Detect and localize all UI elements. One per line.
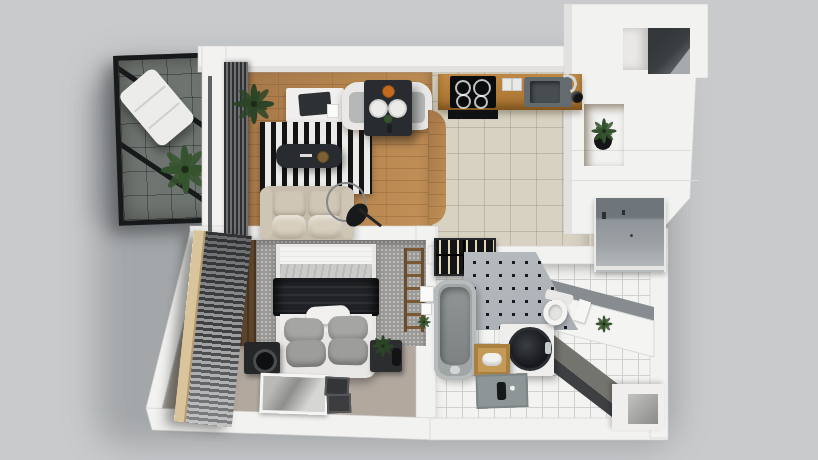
outlet <box>512 78 522 91</box>
bed-pillow <box>286 339 327 367</box>
wooden-stool <box>474 344 510 376</box>
wall-top-lip <box>198 66 594 72</box>
remote <box>300 154 312 157</box>
tower-seam <box>568 180 698 181</box>
planter <box>370 340 402 372</box>
amenity-bottle <box>497 382 507 400</box>
door-knob <box>630 234 633 237</box>
speaker-cone <box>253 349 277 373</box>
wall-shell <box>0 0 818 460</box>
vanity-faucet <box>545 342 551 354</box>
table-greens <box>384 115 392 123</box>
mattress-fold <box>280 264 372 279</box>
desk <box>286 88 344 122</box>
bath-mat <box>475 373 528 409</box>
plate <box>388 99 407 118</box>
dining-table <box>364 80 412 136</box>
desk-paper <box>327 104 339 118</box>
oven-front <box>448 110 498 119</box>
arc-floor-lamp <box>326 182 382 242</box>
door-hinge <box>602 212 606 219</box>
corner-plant <box>230 80 278 128</box>
picture-frame-small <box>327 394 352 414</box>
sink-basin <box>530 81 560 103</box>
wood-floor-curve <box>428 110 446 225</box>
orange-dish <box>382 85 395 98</box>
niche-recess <box>628 394 658 424</box>
kitchen-sink <box>524 77 572 107</box>
outlet <box>502 78 512 91</box>
black-vase <box>392 348 401 366</box>
wall-balcony-divider <box>202 46 226 244</box>
picture-frame-large <box>259 373 328 415</box>
tower-recess <box>623 28 649 70</box>
bathtub <box>434 280 476 380</box>
tub-basin <box>440 287 470 365</box>
niche-plant <box>589 116 619 146</box>
tub-faucet <box>450 366 460 374</box>
toilet-seat <box>547 303 564 322</box>
burner <box>474 95 488 109</box>
induction-hob <box>450 76 496 108</box>
table-bottle <box>387 124 392 133</box>
sofa-seat-cushion <box>273 191 306 217</box>
entry-door-panel <box>594 198 666 272</box>
wood-niche <box>584 104 624 166</box>
speaker-nightstand <box>244 342 280 374</box>
decor-bowl <box>317 151 329 163</box>
entry-tower-left-face <box>564 4 572 234</box>
door-hinge <box>622 210 625 215</box>
pepper-mill <box>571 91 583 103</box>
shaft-highlight <box>670 48 690 74</box>
kitchen-counter <box>438 74 582 110</box>
double-bed <box>276 244 376 378</box>
apartment-floorplan-render <box>0 0 818 460</box>
sofa-arm <box>260 188 272 239</box>
coffee-table <box>276 144 342 168</box>
bathroom-wall-plant <box>594 314 614 334</box>
bed-pillow <box>328 337 369 365</box>
window-glass-line <box>208 76 212 236</box>
corner-niche <box>612 384 664 430</box>
sofa-back-cushion <box>272 215 306 239</box>
rolled-towel <box>482 353 502 366</box>
shaft-opening <box>648 28 690 74</box>
amenity-dot <box>510 386 515 391</box>
burner <box>456 94 471 109</box>
bathroom <box>430 264 656 424</box>
